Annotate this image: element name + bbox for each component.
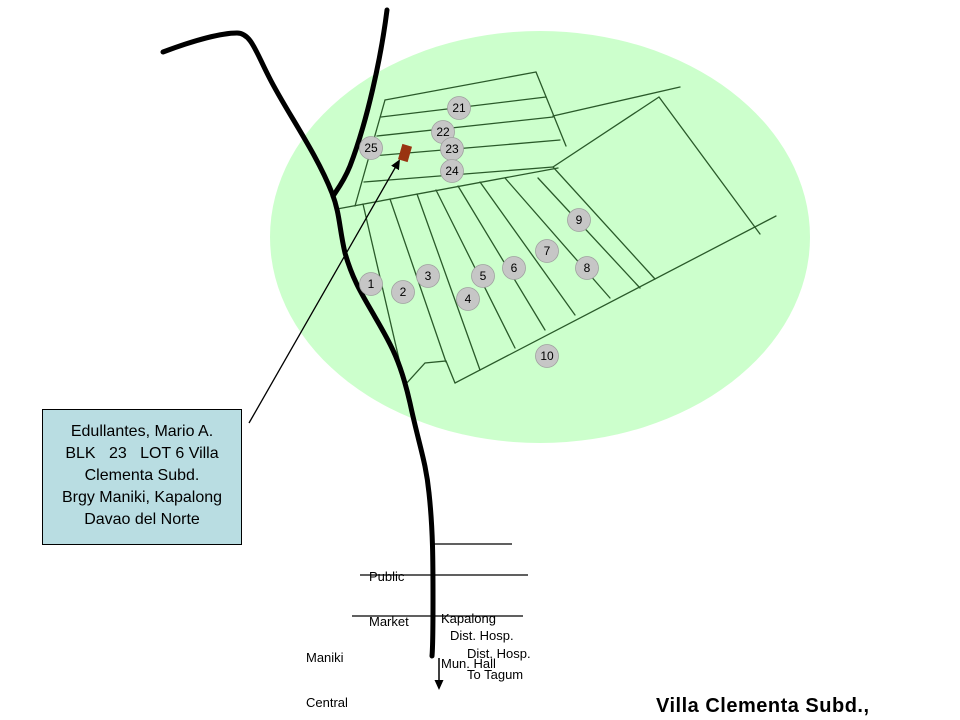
lot-marker-number: 24 xyxy=(445,164,459,178)
lot-marker-number: 3 xyxy=(425,269,432,283)
lot-marker-number: 8 xyxy=(584,261,591,275)
public-market-label: Public Market xyxy=(369,539,409,659)
map-slide: 123456789102122232425 Edullantes, Mario … xyxy=(0,0,960,720)
lot-marker-number: 5 xyxy=(480,269,487,283)
to-tagum-label: To Tagum xyxy=(467,667,523,682)
lot-marker-number: 7 xyxy=(544,244,551,258)
owner-subd: Clementa Subd. xyxy=(43,465,241,487)
lot-marker-number: 25 xyxy=(364,141,378,155)
lot-marker-number: 6 xyxy=(511,261,518,275)
lot-marker-number: 23 xyxy=(445,142,459,156)
map-title: Villa Clementa Subd., Maniki, Kapalong, … xyxy=(656,629,903,720)
lot-marker-number: 2 xyxy=(400,285,407,299)
owner-brgy: Brgy Maniki, Kapalong xyxy=(43,487,241,509)
maniki-elem-school-label: Maniki Central Elem sch xyxy=(306,620,359,720)
owner-prov: Davao del Norte xyxy=(43,509,241,531)
owner-info-box: Edullantes, Mario A. BLK 23 LOT 6 Villa … xyxy=(42,409,242,545)
owner-name: Edullantes, Mario A. xyxy=(43,421,241,443)
map-title-line1: Villa Clementa Subd., xyxy=(656,691,903,720)
district-hospital-label: Dist. Hosp. xyxy=(450,628,514,643)
lot-marker-number: 9 xyxy=(576,213,583,227)
lot-marker-number: 21 xyxy=(452,101,466,115)
lot-marker-number: 10 xyxy=(540,349,554,363)
lot-marker-number: 22 xyxy=(436,125,450,139)
district-hospital-label-2: Dist. Hosp. xyxy=(467,646,531,661)
lot-marker-number: 1 xyxy=(368,277,375,291)
lot-marker-number: 4 xyxy=(465,292,472,306)
subdivision-area xyxy=(270,31,810,443)
owner-blk-lot: BLK 23 LOT 6 Villa xyxy=(43,443,241,465)
